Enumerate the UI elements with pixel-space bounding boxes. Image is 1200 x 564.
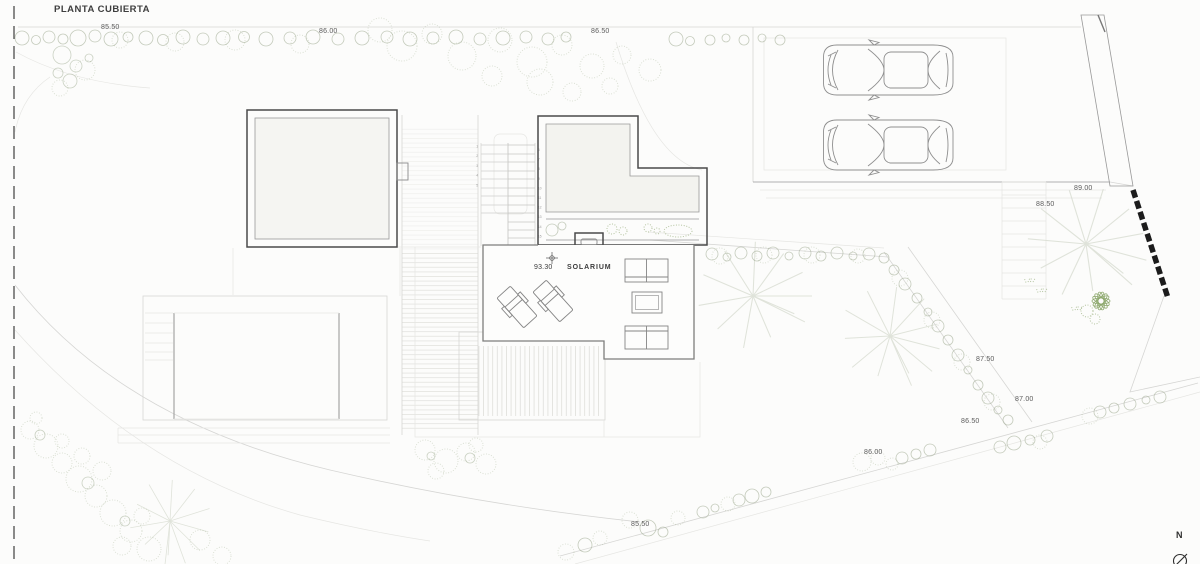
roof-main	[538, 116, 707, 252]
car-icon	[824, 40, 954, 100]
svg-text:3: 3	[476, 164, 478, 168]
level-label: 86.00	[864, 449, 883, 456]
retaining-wall-hatch	[1133, 190, 1168, 298]
deck-vertical-planks	[459, 332, 605, 420]
plant-icon	[1081, 292, 1110, 324]
level-label: 87.50	[976, 356, 995, 363]
car-icon	[824, 115, 954, 175]
solarium-terrace	[483, 245, 694, 359]
svg-text:4: 4	[476, 174, 478, 178]
north-label: N	[1176, 531, 1183, 540]
level-label: 85.50	[631, 521, 650, 528]
drawing-sheet: 12345 678910111213141516	[0, 0, 1200, 564]
level-label: 89.00	[1074, 185, 1093, 192]
hedge-top	[15, 18, 785, 101]
garden-steps	[1002, 182, 1046, 299]
svg-text:1: 1	[476, 145, 478, 149]
deck-horizontal-planks	[402, 115, 478, 435]
parking-area	[753, 27, 1110, 198]
level-label: 85.50	[101, 24, 120, 31]
solarium-name-label: SOLARIUM	[567, 264, 612, 271]
svg-text:2: 2	[476, 154, 478, 158]
page-title: PLANTA CUBIERTA	[54, 5, 150, 15]
level-label: 87.00	[1015, 396, 1034, 403]
solarium-level-label: 93.30	[534, 264, 553, 271]
vegetation-mid-bottom	[415, 438, 496, 479]
level-label: 86.00	[319, 28, 338, 35]
roof-left	[247, 110, 408, 247]
pool-ghost	[118, 296, 390, 443]
level-label: 88.50	[1036, 201, 1055, 208]
planter-plants	[546, 222, 692, 237]
level-label: 86.50	[591, 28, 610, 35]
site-plan-drawing: 12345 678910111213141516	[0, 0, 1200, 564]
svg-text:5: 5	[476, 183, 478, 187]
north-arrow-icon	[1173, 554, 1187, 564]
level-label: 86.50	[961, 418, 980, 425]
stair: 12345 678910111213141516	[476, 134, 542, 248]
boundary-strip	[1081, 15, 1133, 186]
